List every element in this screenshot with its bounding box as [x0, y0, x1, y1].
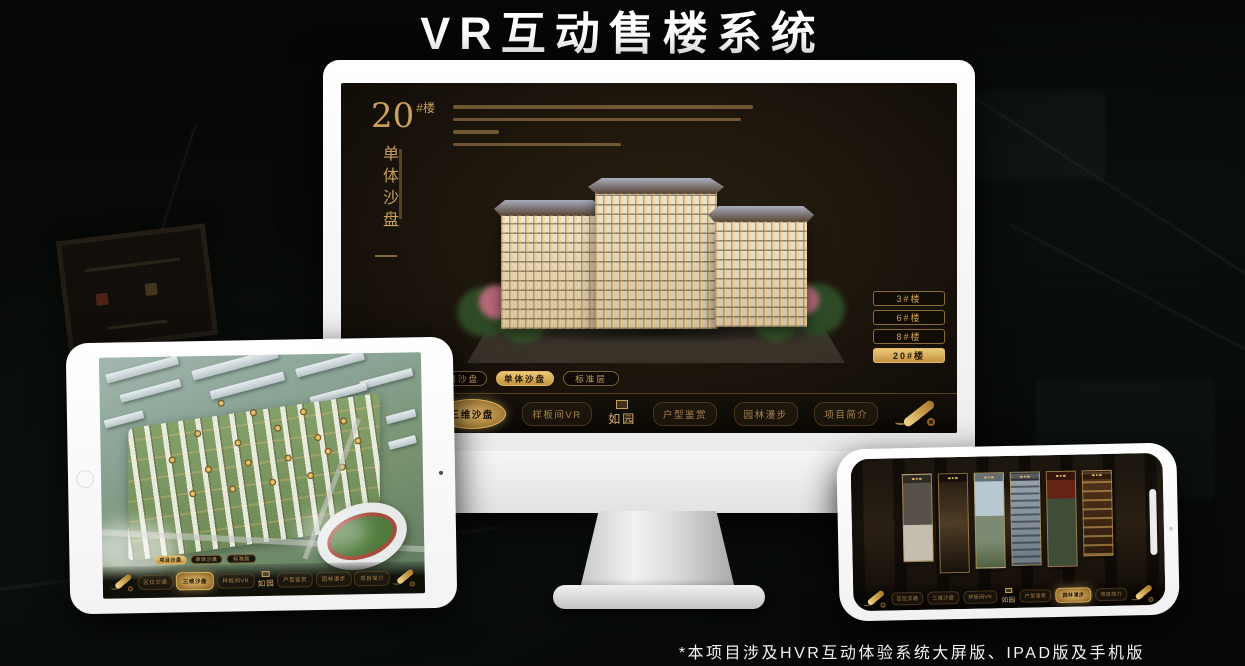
- block-title: 20#楼: [371, 99, 435, 133]
- gallery-panel[interactable]: [974, 472, 1006, 569]
- description-line: [453, 130, 499, 134]
- panel-caption: [939, 474, 967, 483]
- nav-item-unit-gallery[interactable]: 户型鉴赏: [277, 572, 313, 588]
- nav-item-3d-sandtable[interactable]: 三维沙盘: [927, 591, 959, 605]
- building-marker[interactable]: [314, 434, 321, 441]
- city-building: [105, 356, 179, 384]
- building-model-view[interactable]: [449, 159, 863, 377]
- tablet-camera: [439, 470, 443, 474]
- building-marker[interactable]: [234, 439, 241, 446]
- description-line: [453, 143, 621, 147]
- nav-item-project-intro[interactable]: 项目简介: [1095, 587, 1127, 601]
- panel-caption: [1011, 472, 1039, 481]
- scroll-cap: [927, 418, 935, 426]
- tablet-navbar: 区位交通 三维沙盘 样板间VR 如园 户型鉴赏 园林漫步 项目简介: [103, 561, 426, 599]
- city-building: [385, 409, 416, 424]
- tab-single-sandtable[interactable]: 单体沙盘: [190, 555, 222, 565]
- project-logo[interactable]: 如园: [608, 400, 636, 427]
- scroll-cap: [410, 581, 415, 586]
- tab-project-sandtable[interactable]: 项目沙盘: [154, 555, 186, 565]
- scroll-menu-icon[interactable]: [895, 401, 941, 427]
- project-logo[interactable]: 如园: [1001, 588, 1015, 604]
- tablet-device: 项目沙盘 单体沙盘 标准层 区位交通 三维沙盘 样板间VR 如园 户型鉴赏: [66, 337, 458, 615]
- nav-item-garden-walk[interactable]: 园林漫步: [316, 571, 352, 587]
- floor-button-3[interactable]: 3#楼: [873, 291, 945, 306]
- logo-text: 如园: [608, 410, 636, 427]
- tablet-view-tabs: 项目沙盘 单体沙盘 标准层: [154, 554, 256, 565]
- nav-item-showroom-vr[interactable]: 样板间VR: [522, 402, 591, 426]
- footnote: *本项目涉及HVR互动体验系统大屏版、IPAD版及手机版: [679, 639, 1145, 663]
- phone-device: 区位交通 三维沙盘 样板间VR 如园 户型鉴赏 园林漫步 项目简介: [836, 442, 1180, 621]
- logo-seal-icon: [616, 400, 628, 409]
- monitor-stand-neck: [580, 511, 735, 589]
- building-marker[interactable]: [354, 437, 361, 444]
- building-marker[interactable]: [340, 417, 347, 424]
- logo-seal-icon: [1005, 588, 1012, 593]
- floor-button-6[interactable]: 6#楼: [873, 310, 945, 325]
- nav-item-location-traffic[interactable]: 区位交通: [891, 591, 923, 605]
- roof: [588, 178, 724, 194]
- tab-single-sandtable[interactable]: 单体沙盘: [496, 371, 554, 386]
- building-marker[interactable]: [218, 400, 225, 407]
- scroll-cap: [128, 586, 133, 591]
- building-marker[interactable]: [205, 466, 212, 473]
- certificate-text-line: [84, 258, 180, 273]
- description-line: [453, 118, 741, 122]
- city-building: [210, 372, 286, 400]
- certificate-seal: [95, 293, 108, 306]
- panel-caption: [903, 475, 931, 484]
- city-building: [388, 435, 417, 450]
- nav-item-showroom-vr[interactable]: 样板间VR: [963, 590, 997, 604]
- phone-screen: 区位交通 三维沙盘 样板间VR 如园 户型鉴赏 园林漫步 项目简介: [850, 453, 1165, 612]
- scroll-cap: [1148, 597, 1153, 602]
- tablet-screen: 项目沙盘 单体沙盘 标准层 区位交通 三维沙盘 样板间VR 如园 户型鉴赏: [99, 352, 425, 599]
- nav-item-garden-walk[interactable]: 园林漫步: [734, 402, 798, 426]
- roof: [494, 200, 604, 216]
- floor-button-8[interactable]: 8#楼: [873, 329, 945, 344]
- phone-camera: [1169, 527, 1173, 531]
- building-marker[interactable]: [189, 490, 196, 497]
- scroll-cap: [880, 603, 885, 608]
- panel-caption: [1047, 472, 1075, 481]
- screen-side-highlight: [1149, 489, 1157, 555]
- nav-item-garden-walk[interactable]: 园林漫步: [1055, 587, 1091, 603]
- bg-map-patch: [965, 90, 1105, 180]
- building-center: [595, 193, 717, 329]
- building-marker[interactable]: [307, 472, 314, 479]
- description-paragraph: [453, 105, 753, 155]
- block-underline: [375, 255, 397, 257]
- tab-standard-floor[interactable]: 标准层: [226, 554, 256, 564]
- building-marker[interactable]: [229, 485, 236, 492]
- block-number: 20: [371, 96, 414, 136]
- project-logo[interactable]: 如园: [257, 571, 274, 589]
- poster-canvas: VR互动售楼系统 20#楼 单体沙盘: [0, 0, 1245, 666]
- city-building: [120, 379, 182, 403]
- building-marker[interactable]: [325, 448, 332, 455]
- nav-item-location-traffic[interactable]: 区位交通: [137, 574, 173, 590]
- scroll-menu-icon[interactable]: [863, 590, 887, 608]
- gallery-panel[interactable]: [902, 474, 934, 563]
- scroll-menu-icon[interactable]: [111, 573, 135, 591]
- page-title: VR互动售楼系统: [0, 0, 1245, 58]
- city-building: [295, 352, 365, 377]
- panel-caption: [1083, 471, 1111, 480]
- nav-item-project-intro[interactable]: 项目简介: [354, 570, 390, 586]
- certificate-text-line: [108, 320, 168, 330]
- monitor-stand-base: [553, 585, 765, 609]
- roof: [708, 206, 814, 222]
- logo-text: 如园: [1001, 594, 1015, 604]
- gallery-panel[interactable]: [1010, 471, 1042, 566]
- nav-item-project-intro[interactable]: 项目简介: [814, 402, 878, 426]
- block-suffix: #楼: [416, 101, 435, 115]
- gallery-panel[interactable]: [1082, 470, 1114, 557]
- logo-text: 如园: [258, 578, 275, 589]
- view-tabs: 项目沙盘 单体沙盘 标准层: [429, 371, 619, 386]
- city-building: [359, 368, 413, 390]
- floor-selector: 3#楼 6#楼 8#楼 20#楼: [873, 291, 945, 363]
- building-marker[interactable]: [285, 454, 292, 461]
- tablet-home-button[interactable]: [76, 469, 94, 487]
- certificate-seal: [145, 283, 158, 296]
- building-right-wing: [715, 221, 807, 327]
- building-marker[interactable]: [250, 409, 257, 416]
- nav-item-3d-sandtable[interactable]: 三维沙盘: [176, 572, 214, 591]
- nav-item-showroom-vr[interactable]: 样板间VR: [216, 573, 255, 589]
- scroll-menu-icon[interactable]: [393, 568, 417, 586]
- nav-item-unit-gallery[interactable]: 户型鉴赏: [653, 402, 717, 426]
- nav-item-unit-gallery[interactable]: 户型鉴赏: [1020, 589, 1052, 603]
- building-marker[interactable]: [274, 425, 281, 432]
- building-left-wing: [501, 215, 597, 329]
- bg-road-line: [1009, 223, 1245, 381]
- phone-navbar: 区位交通 三维沙盘 样板间VR 如园 户型鉴赏 园林漫步 项目简介: [853, 581, 1165, 612]
- floor-button-20-active[interactable]: 20#楼: [873, 348, 945, 363]
- logo-seal-icon: [262, 571, 270, 577]
- gallery-panel[interactable]: [1046, 471, 1078, 568]
- scroll-menu-icon[interactable]: [1131, 584, 1155, 602]
- panel-caption: [975, 473, 1003, 482]
- bg-certificate-frame: [56, 223, 219, 352]
- block-subtitle: 单体沙盘: [377, 145, 401, 233]
- description-line: [453, 105, 753, 109]
- gallery-panels: [902, 470, 1114, 574]
- gallery-panel[interactable]: [938, 473, 970, 574]
- building-marker[interactable]: [300, 408, 307, 415]
- building-marker[interactable]: [194, 430, 201, 437]
- tab-standard-floor[interactable]: 标准层: [563, 371, 619, 386]
